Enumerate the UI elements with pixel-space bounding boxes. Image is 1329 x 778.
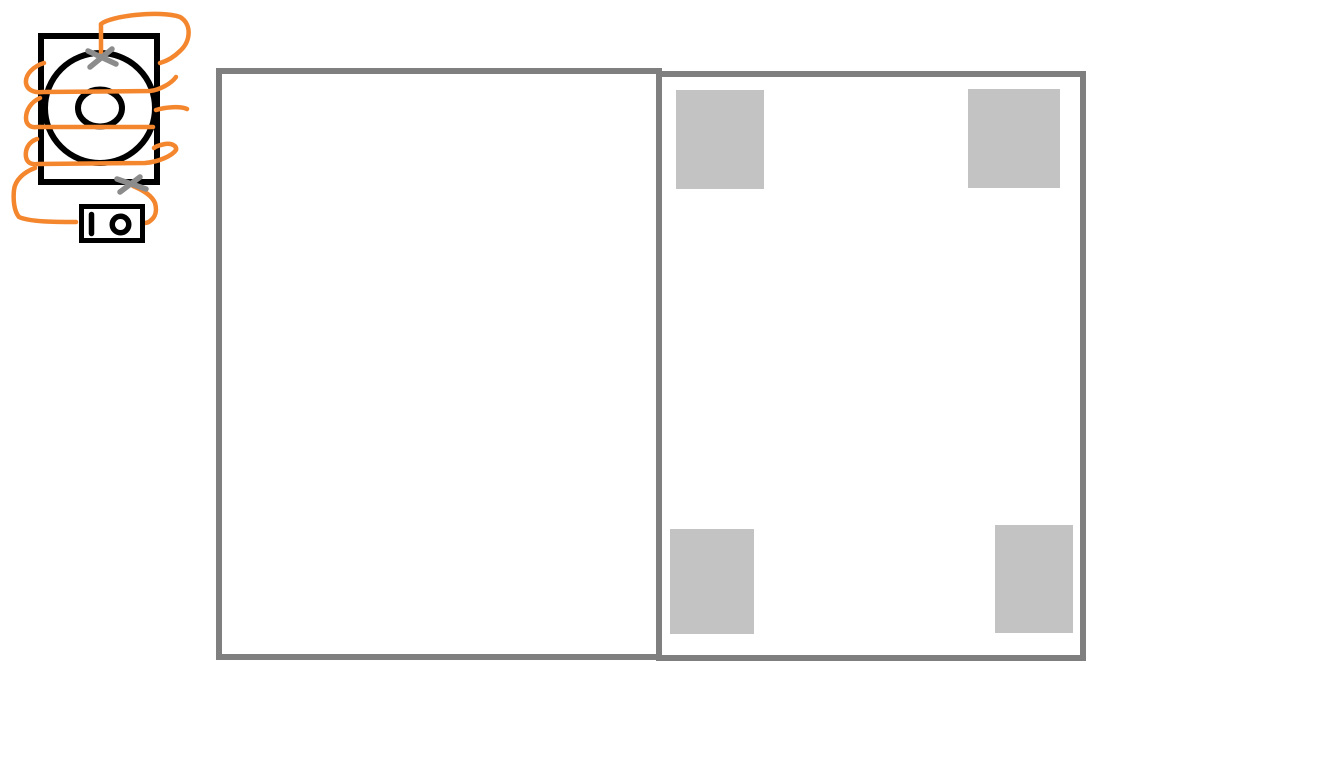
placeholder-square <box>968 89 1060 188</box>
drawing-canvas <box>0 0 1329 778</box>
left-panel <box>216 68 662 660</box>
placeholder-square <box>995 525 1073 633</box>
speaker-coil-sketch <box>0 0 200 260</box>
speaker-cone-outer <box>45 53 155 163</box>
placeholder-square <box>676 90 764 189</box>
placeholder-square <box>670 529 754 634</box>
speaker-cone-inner <box>78 90 122 127</box>
right-panel <box>656 71 1086 661</box>
